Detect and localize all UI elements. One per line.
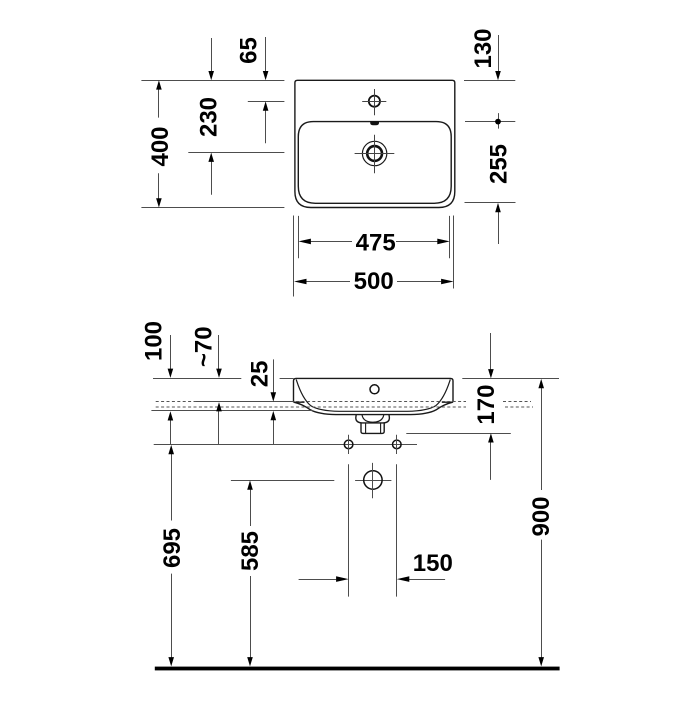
svg-text:170: 170 (473, 385, 500, 425)
svg-text:255: 255 (486, 144, 513, 184)
svg-text:475: 475 (356, 229, 396, 256)
svg-text:100: 100 (141, 321, 168, 361)
svg-text:585: 585 (237, 531, 264, 571)
svg-text:25: 25 (247, 361, 274, 388)
svg-text:230: 230 (196, 97, 223, 137)
svg-text:65: 65 (236, 37, 263, 64)
svg-text:500: 500 (354, 268, 394, 295)
svg-text:130: 130 (470, 28, 497, 68)
svg-text:150: 150 (413, 550, 453, 577)
svg-text:695: 695 (159, 528, 186, 568)
svg-text:900: 900 (528, 496, 555, 536)
svg-text:~70: ~70 (191, 326, 218, 367)
svg-text:400: 400 (147, 126, 174, 166)
